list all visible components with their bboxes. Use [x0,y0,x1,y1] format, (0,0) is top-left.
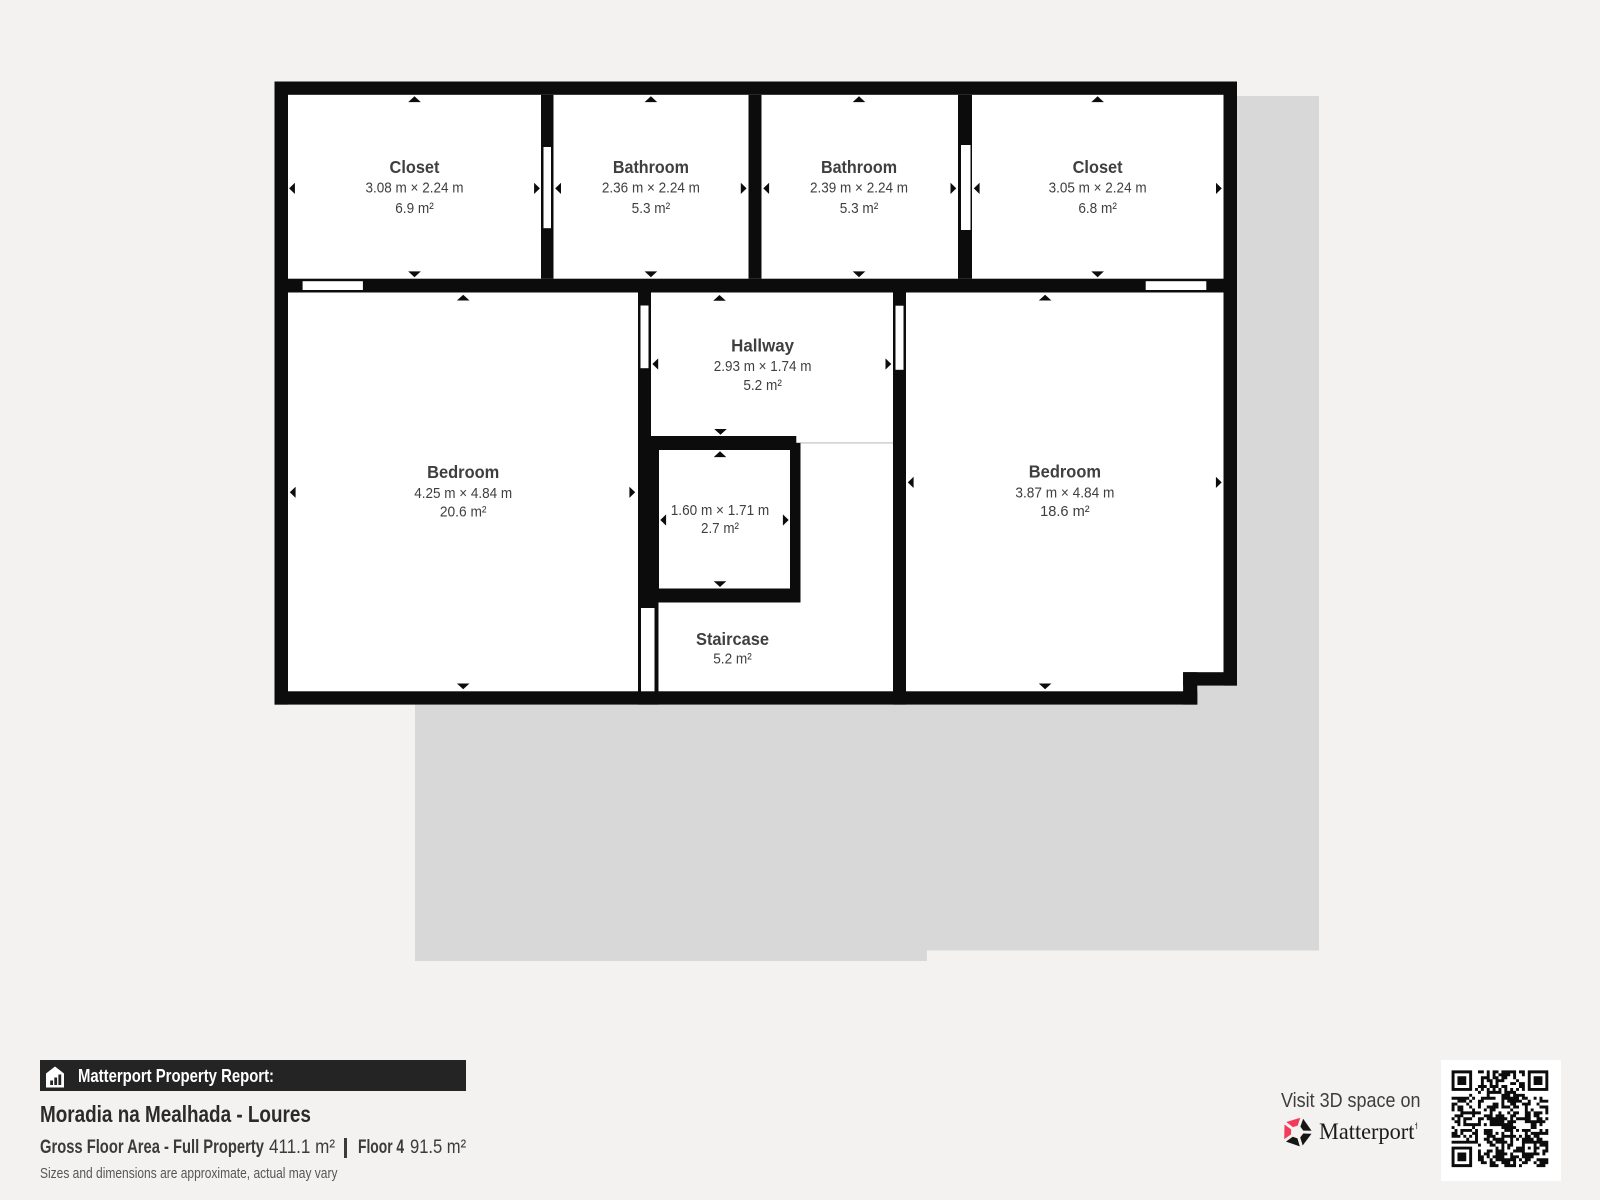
svg-text:18.6 m²: 18.6 m² [1040,503,1090,520]
svg-text:5.3 m²: 5.3 m² [840,200,879,217]
svg-text:Closet: Closet [390,157,440,177]
svg-text:Staircase: Staircase [696,629,769,649]
svg-text:20.6 m²: 20.6 m² [440,503,487,520]
svg-text:Hallway: Hallway [731,336,794,356]
svg-text:5.2 m²: 5.2 m² [713,650,752,667]
svg-text:Bedroom: Bedroom [1029,462,1101,482]
svg-text:2.36 m × 2.24 m: 2.36 m × 2.24 m [602,180,700,197]
svg-text:3.87 m × 4.84 m: 3.87 m × 4.84 m [1015,485,1114,502]
svg-text:1.60 m × 1.71 m: 1.60 m × 1.71 m [671,502,770,519]
svg-text:6.9 m²: 6.9 m² [395,200,434,217]
svg-text:Closet: Closet [1073,157,1123,177]
svg-text:Bedroom: Bedroom [427,462,499,482]
svg-text:4.25 m × 4.84 m: 4.25 m × 4.84 m [414,485,512,502]
svg-text:2.93 m × 1.74 m: 2.93 m × 1.74 m [714,358,812,375]
svg-text:2.7 m²: 2.7 m² [701,520,739,537]
svg-text:3.05 m × 2.24 m: 3.05 m × 2.24 m [1049,180,1147,197]
svg-text:6.8 m²: 6.8 m² [1078,200,1117,217]
svg-text:Bathroom: Bathroom [821,157,897,177]
svg-text:2.39 m × 2.24 m: 2.39 m × 2.24 m [810,180,908,197]
svg-text:Bathroom: Bathroom [613,157,689,177]
svg-text:5.2 m²: 5.2 m² [743,377,782,394]
svg-text:3.08 m × 2.24 m: 3.08 m × 2.24 m [366,180,464,197]
svg-text:5.3 m²: 5.3 m² [632,200,671,217]
